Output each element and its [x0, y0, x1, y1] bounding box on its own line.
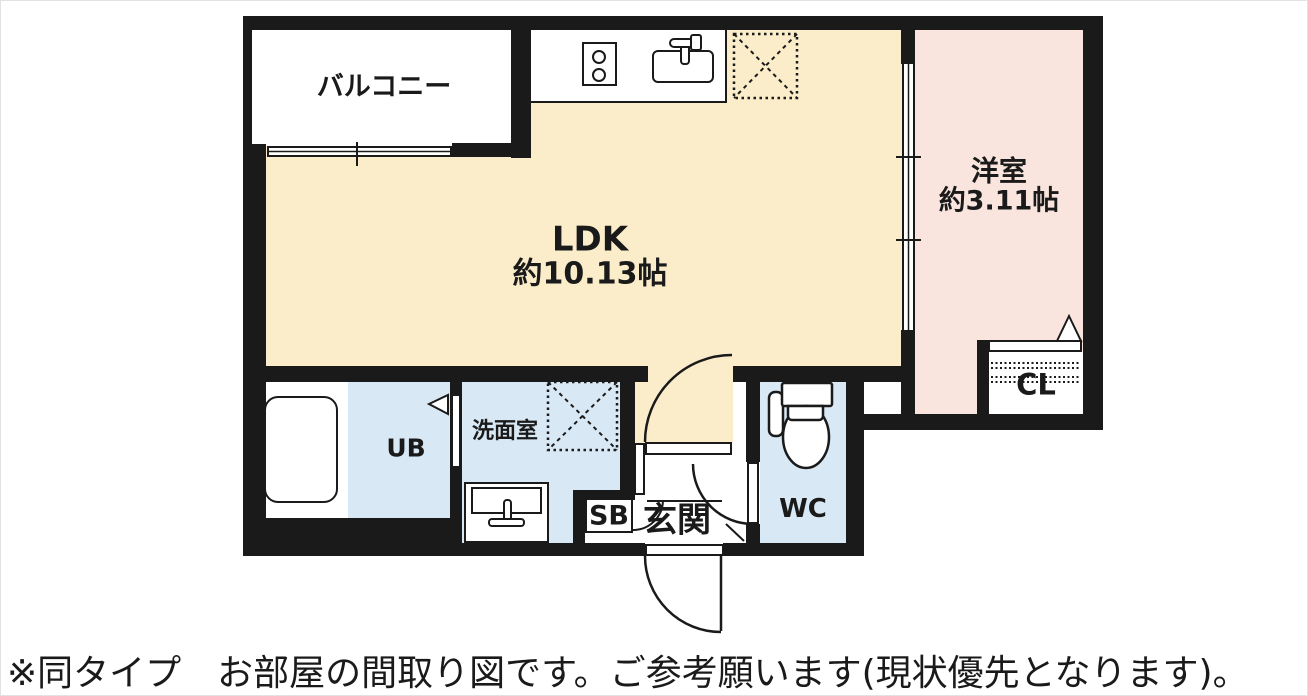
shoebox-label: SB [589, 501, 629, 530]
western-room-label: 洋室 約3.11帖 [939, 156, 1060, 215]
stove-burner-icon [592, 68, 606, 82]
floor-plan: バルコニー LDK 約10.13帖 洋室 約3.11帖 洗面室 UB WC 玄関… [0, 0, 1308, 696]
western-room-size: 約3.11帖 [939, 187, 1060, 216]
front-door-swing [645, 556, 721, 632]
wall [746, 366, 760, 462]
ub-door-panel [451, 394, 461, 468]
ldk-name: LDK [513, 221, 668, 258]
front-door-panel [645, 544, 724, 556]
ldk-door-panel [645, 442, 732, 455]
wall [901, 330, 915, 416]
ldk-floor-notch [635, 370, 733, 445]
western-room-name: 洋室 [939, 156, 1060, 186]
ldk-size: 約10.13帖 [513, 258, 668, 290]
wall [620, 366, 635, 500]
wall [746, 524, 760, 543]
wall [901, 28, 915, 64]
wall [723, 543, 864, 556]
balcony-label: バルコニー [317, 72, 451, 101]
bathtub-icon [264, 396, 338, 503]
wall [243, 366, 648, 382]
wall [511, 16, 531, 158]
ldk-label: LDK 約10.13帖 [513, 221, 668, 290]
stove-burner-icon [592, 50, 606, 64]
wall [452, 143, 512, 157]
washbasin-faucet-icon [488, 518, 525, 527]
toilet-label: WC [779, 495, 827, 523]
wall [573, 490, 585, 545]
entrance-label: 玄関 [643, 503, 711, 540]
wall [846, 414, 1103, 430]
wall [243, 16, 252, 150]
closet-label: CL [1016, 369, 1056, 400]
wall [1083, 16, 1103, 430]
washroom-door-panel [634, 443, 645, 495]
washroom-label: 洗面室 [472, 420, 538, 444]
wall [243, 518, 462, 556]
caption-text: ※同タイプ お部屋の間取り図です。ご参考願います(現状優先となります)。 [7, 644, 1307, 696]
sliding-door-icon [902, 62, 915, 332]
wall [440, 543, 645, 556]
kitchen-sink-icon [652, 50, 714, 83]
balcony-window-icon [267, 146, 452, 157]
wc-door-panel [747, 462, 759, 524]
wall [243, 144, 266, 556]
unit-bath-label: UB [386, 435, 425, 462]
closet-door-panel [988, 340, 1082, 352]
wall [846, 366, 864, 556]
wall [243, 16, 1103, 30]
